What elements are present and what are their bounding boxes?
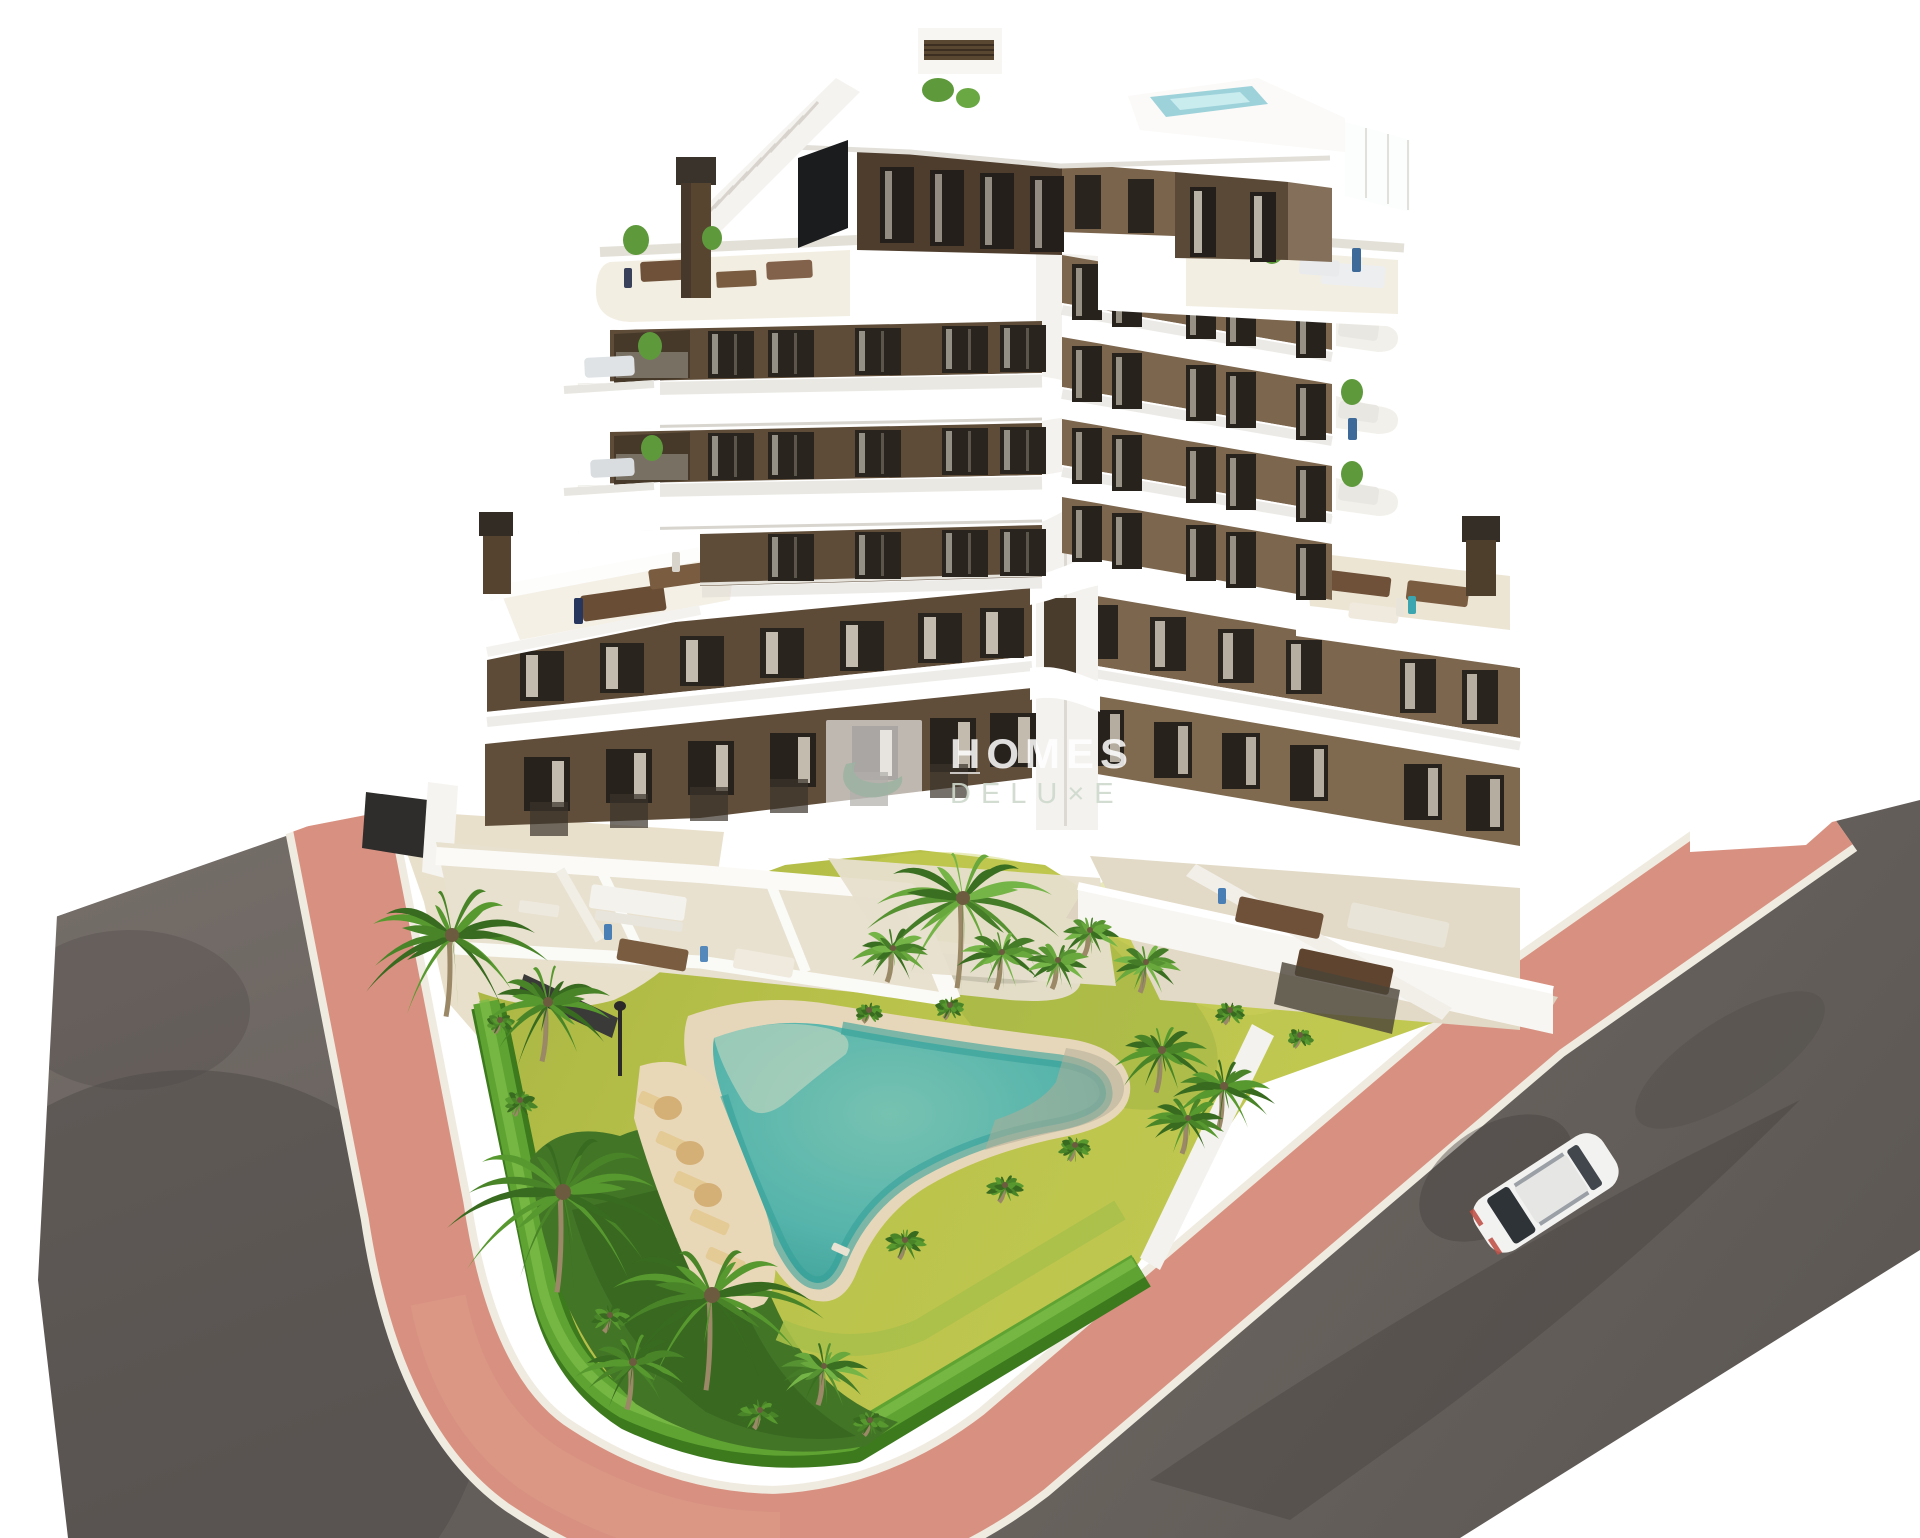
svg-text:DELU×E: DELU×E xyxy=(950,778,1124,810)
svg-text:HOMES: HOMES xyxy=(950,730,1134,777)
